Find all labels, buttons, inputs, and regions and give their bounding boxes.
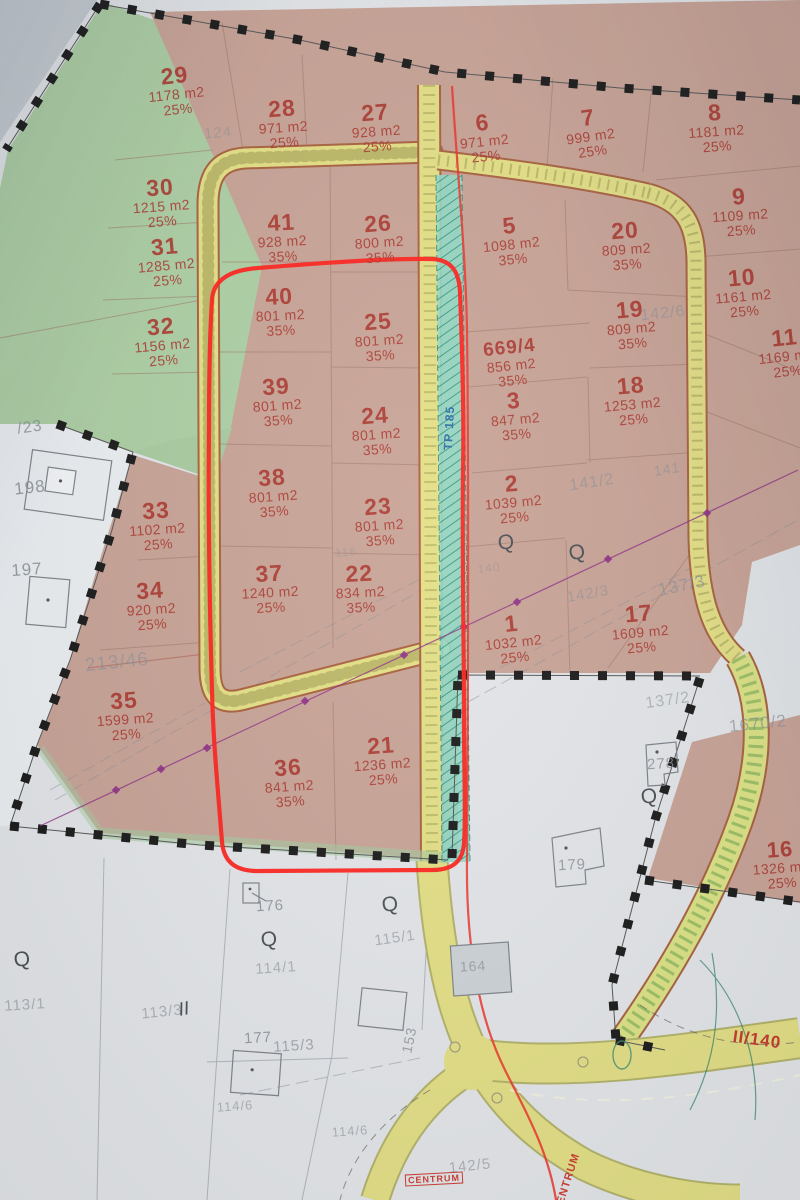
cadastral-label-164: 164 [459,957,486,974]
cadastral-label-113-1: 113/1 [4,995,47,1015]
parcel-coverage: 35% [256,322,306,339]
parcel-coverage: 35% [355,346,405,364]
parcel-coverage: 25% [753,874,800,893]
conifer-tree-symbol: Q [567,540,587,566]
cadastral-label-124: 124 [203,124,232,143]
parcel-coverage: 35% [352,440,402,458]
cadastral-label-278: 278 [647,755,676,773]
cadastral-label-176: 176 [256,897,285,915]
parcel-coverage: 25% [689,137,746,156]
parcel-label-9: 91109 m225% [710,182,770,239]
parcel-coverage: 25% [97,725,155,744]
conifer-tree-symbol: Q [640,784,658,809]
parcel-coverage: 25% [127,615,177,633]
annotation-TP-185: TP 185 [441,405,457,450]
parcel-label-6: 6971 m225% [457,108,511,166]
parcel-coverage: 35% [355,531,405,549]
parcel-coverage: 35% [355,248,405,266]
cadastral-label-114-1: 114/1 [255,958,298,978]
parcel-label-18: 181253 m225% [601,371,663,429]
parcel-label-37: 371240 m225% [240,560,300,616]
parcel-label-7: 7999 m225% [562,102,618,162]
parcel-coverage: 25% [713,221,770,240]
cadastral-label-197: 197 [11,559,44,581]
parcel-label-10: 101161 m225% [713,263,774,321]
cadastral-label-137-3: 137/3 [657,571,708,600]
cadastral-label-153: 153 [398,1025,419,1054]
parcel-label-41: 41928 m235% [256,209,308,265]
parcel-coverage: 35% [258,248,308,265]
parcel-coverage: 25% [354,770,412,789]
cadastral-label-116: 116 [334,544,357,560]
parcel-coverage: 25% [242,599,300,617]
parcel-label-5: 51098 m235% [480,210,543,269]
parcel-coverage: 35% [265,792,315,810]
parcel-label-21: 211236 m225% [352,731,413,788]
annotation-CENTRUM: CENTRUM [405,1171,464,1186]
parcel-label-39: 39801 m235% [251,373,304,430]
cadastral-label-114-6: 114/6 [216,1097,254,1115]
cadastral-label--23: /23 [16,417,44,438]
parcel-label-35: 351599 m225% [95,686,156,743]
cadastral-label-115-3: 115/3 [273,1036,316,1056]
cadastral-label-140: 140 [477,560,501,576]
cadastral-label-141-2: 141/2 [568,471,615,496]
parcel-label-34: 34920 m225% [125,577,178,634]
cadastral-label-177: 177 [244,1029,273,1047]
parcel-label-22: 22834 m235% [334,560,386,616]
parcel-coverage: 35% [253,411,303,429]
cadastral-label-1670-2: 1670/2 [728,711,788,737]
parcel-label-20: 20809 m235% [600,217,653,274]
parcel-label-29: 291178 m225% [145,60,207,119]
parcel-label-38: 38801 m235% [247,464,300,521]
parcel-coverage: 35% [336,599,386,616]
parcel-label-8: 81181 m225% [686,98,746,155]
cadastral-label-179: 179 [558,856,587,874]
parcel-label-24: 24801 m235% [350,402,403,459]
parcel-coverage: 25% [130,535,187,554]
cadastral-label-142-6: 142/6 [640,303,687,326]
label-layer: 291178 m225%28971 m225%27928 m225%6971 m… [0,0,800,1200]
cadastral-label-115-1: 115/1 [373,927,416,950]
parcel-label-17: 171609 m225% [609,599,671,657]
parcel-coverage: 35% [492,425,542,444]
parcel-label-33: 331102 m225% [127,496,187,553]
parcel-label-40: 40801 m235% [254,283,306,339]
parcel-label-23: 23801 m235% [353,493,406,550]
annotation-CENTRUM: CENTRUM [552,1152,583,1200]
parcel-label-36: 36841 m235% [263,754,316,811]
parcel-label-3: 3847 m235% [488,386,542,444]
parcel-label-26: 26800 m235% [353,210,406,267]
parcel-coverage: 35% [602,255,652,273]
cadastral-label-198: 198 [13,476,46,499]
parcel-label-669-4: 669/4856 m235% [482,336,539,391]
parcel-label-2: 21039 m225% [482,469,544,527]
conifer-tree-symbol: Q [380,892,400,918]
parcel-label-25: 25801 m235% [353,308,406,365]
conifer-tree-symbol: Q [12,947,32,973]
parcel-label-30: 301215 m225% [131,173,192,230]
cadastral-label-213-46: 213/46 [84,649,150,678]
parcel-label-16: 161326 m225% [751,836,800,892]
parcel-label-28: 28971 m225% [257,95,310,152]
parcel-coverage: 35% [608,334,658,353]
cadastral-label-142-3: 142/3 [566,582,611,606]
cadastral-label-137-2: 137/2 [644,689,691,713]
conifer-tree-symbol: Q [497,530,515,555]
parcel-label-1: 11032 m225% [482,608,545,667]
parcel-coverage: 25% [352,137,402,155]
parcel-coverage: 35% [249,502,299,520]
parcel-label-27: 27928 m225% [350,99,403,156]
parcel-coverage: 25% [133,212,191,231]
cadastral-map-photo: 291178 m225%28971 m225%27928 m225%6971 m… [0,0,800,1200]
parcel-coverage: 25% [259,133,309,151]
parcel-label-31: 311285 m225% [135,232,197,290]
parcel-label-32: 321156 m225% [132,312,193,370]
cadastral-label-141: 141 [653,459,682,479]
cadastral-label-114-6: 114/6 [331,1122,369,1140]
parcel-label-11: 111169 m225% [755,322,800,381]
conifer-tree-symbol: Q [260,927,278,952]
annotation-II-140: II/140 [732,1027,783,1054]
